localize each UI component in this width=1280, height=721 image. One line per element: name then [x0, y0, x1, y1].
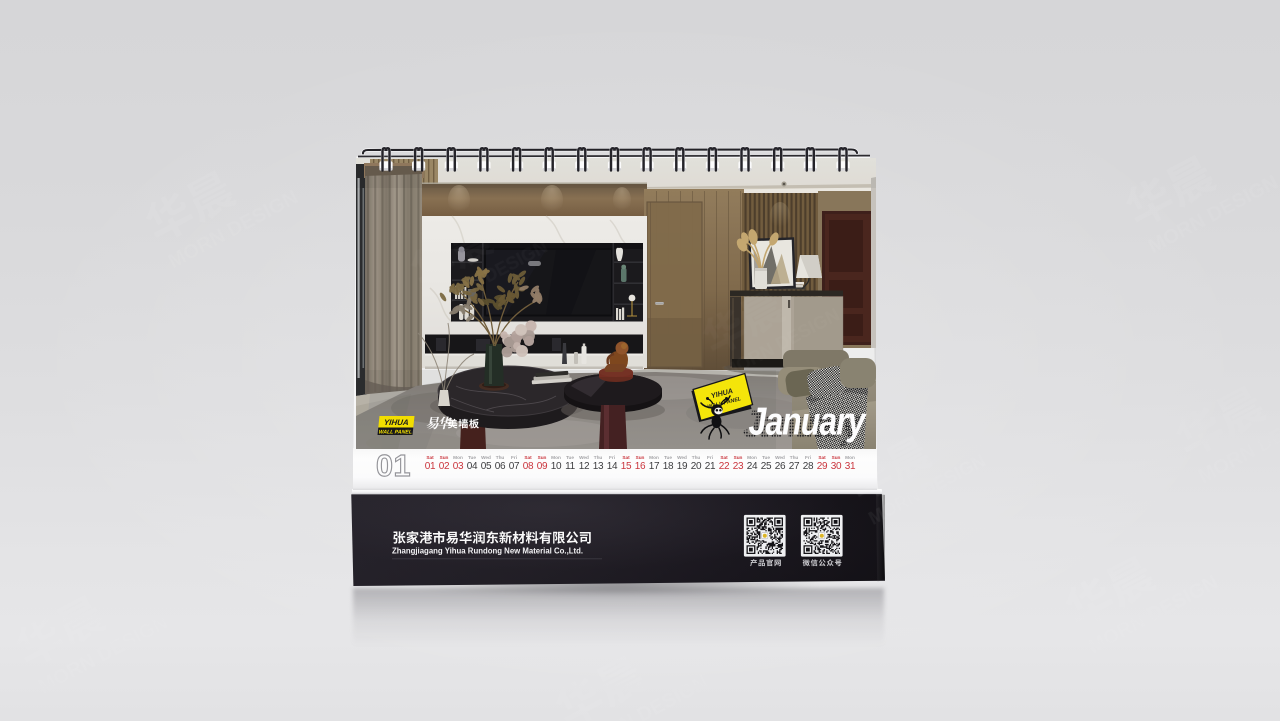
svg-text:MORN DESIGN: MORN DESIGN [427, 236, 550, 314]
svg-text:MORN DESIGN: MORN DESIGN [719, 304, 842, 382]
svg-text:MORN DESIGN: MORN DESIGN [865, 450, 988, 528]
